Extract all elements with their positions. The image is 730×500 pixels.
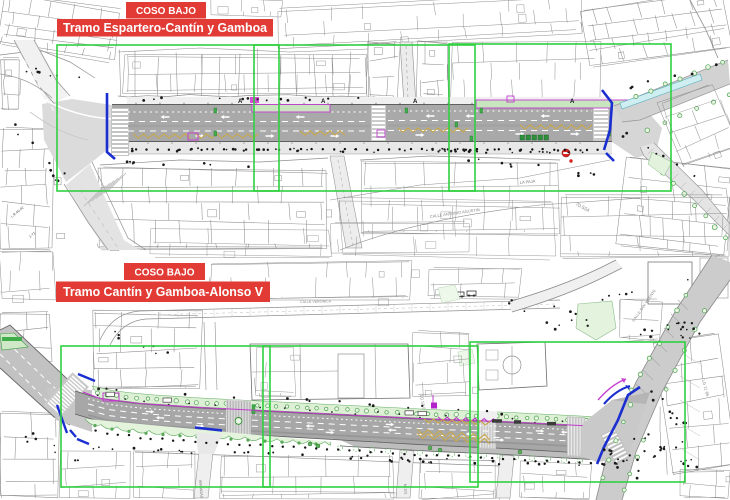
svg-text:COSO BAJO: COSO BAJO	[136, 6, 196, 17]
svg-text:COSO BAJO: COSO BAJO	[134, 268, 194, 279]
svg-text:A: A	[413, 99, 418, 105]
svg-text:Tramo Espartero-Cantín y Gambo: Tramo Espartero-Cantín y Gamboa	[63, 21, 268, 35]
svg-text:M.101: M.101	[403, 484, 408, 495]
svg-text:A: A	[321, 99, 326, 105]
svg-text:CALLE VERONICA: CALLE VERONICA	[300, 299, 332, 304]
svg-text:Tramo Cantín y Gamboa-Alonso V: Tramo Cantín y Gamboa-Alonso V	[63, 285, 264, 299]
svg-text:A: A	[570, 99, 575, 105]
